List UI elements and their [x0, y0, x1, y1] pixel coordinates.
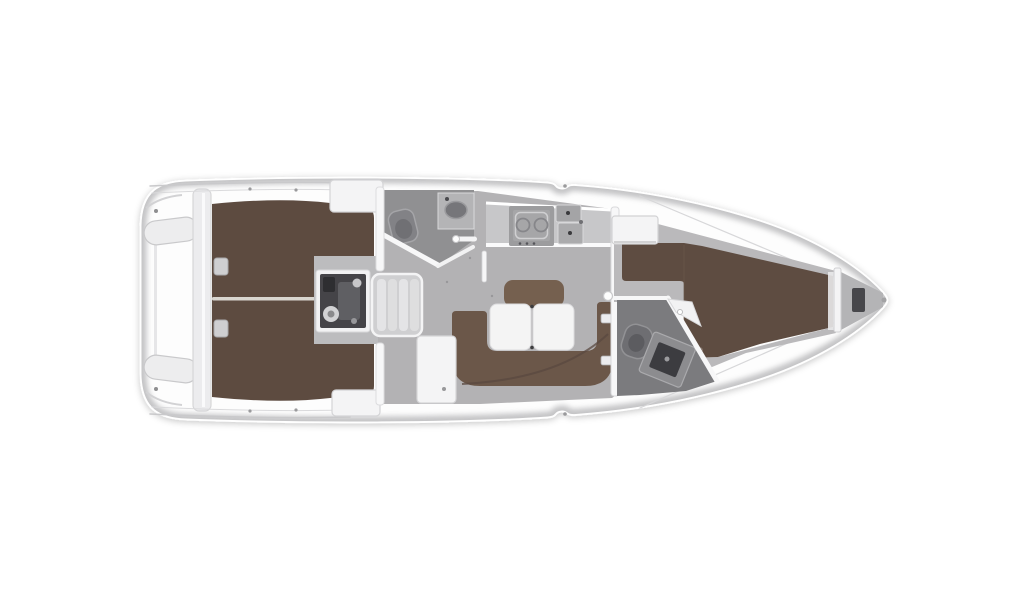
- settee-latch-bottom: [601, 356, 612, 365]
- floorplan-page: [0, 0, 1024, 600]
- stove-knob-1: [519, 242, 522, 245]
- step-4: [410, 279, 419, 331]
- step-2: [388, 279, 397, 331]
- engine-cap: [353, 279, 362, 288]
- nav-cabinet: [417, 336, 456, 403]
- yacht-floorplan-canvas: [0, 0, 1024, 600]
- floor-dot-3: [469, 257, 471, 259]
- aft-locker-top: [330, 180, 383, 212]
- transom-highlight: [202, 193, 205, 407]
- midship-fitting-top: [563, 184, 567, 188]
- swim-platform-line: [154, 236, 157, 364]
- stove-knob-2: [526, 242, 529, 245]
- step-3: [399, 279, 408, 331]
- stanchion-dot-5: [294, 408, 297, 411]
- salon-table-right-leaf: [533, 304, 574, 350]
- salon-aft-wall-upper: [376, 187, 384, 271]
- faucet-aft: [445, 197, 449, 201]
- floor-dot-2: [491, 295, 493, 297]
- companionway-steps: [372, 274, 422, 336]
- bulkhead-door-handle: [604, 292, 613, 301]
- bow-tip-fitting: [882, 298, 887, 303]
- engine-box-detail: [323, 277, 335, 292]
- aft-berth-split-line: [212, 297, 318, 301]
- aft-head-door-handle: [453, 236, 460, 243]
- table-hinge-bottom: [530, 346, 534, 350]
- step-1: [377, 279, 386, 331]
- grab-post: [482, 251, 487, 282]
- settee-latch-top: [601, 314, 612, 323]
- nav-cabinet-knob: [442, 387, 446, 391]
- stern-cleat-top: [154, 209, 158, 213]
- berth-fitting-top: [214, 258, 228, 275]
- stanchion-dot-2: [294, 188, 297, 191]
- aft-locker-bottom: [332, 390, 380, 416]
- settee-backrest: [504, 280, 564, 307]
- anchor-locker-bulkhead: [834, 268, 841, 332]
- fwd-head-door-handle: [678, 310, 683, 315]
- stern-cleat-bottom: [154, 387, 158, 391]
- anchor-fitting: [852, 288, 865, 312]
- berth-foot-edge: [828, 272, 834, 330]
- engine-pulley-inner: [328, 311, 335, 318]
- berth-fitting-bottom: [214, 320, 228, 337]
- engine-filter: [351, 318, 357, 324]
- engine-manifold: [338, 282, 360, 320]
- sink-basin-aft: [445, 202, 467, 219]
- stanchion-dot-4: [248, 409, 251, 412]
- stove-top: [513, 210, 550, 241]
- floor-dot-1: [446, 281, 448, 283]
- salon-aft-wall-lower: [376, 343, 384, 405]
- table-hinge-top: [530, 305, 534, 309]
- salon-table-left-leaf: [490, 304, 531, 350]
- stanchion-dot-1: [248, 187, 251, 190]
- engine-compartment: [314, 256, 378, 344]
- wardrobe: [612, 216, 658, 244]
- galley-faucet: [579, 220, 583, 224]
- midship-fitting-bottom: [563, 412, 567, 416]
- sink-drain-lower: [568, 231, 572, 235]
- sink-drain-upper: [566, 211, 570, 215]
- stove-knob-3: [533, 242, 536, 245]
